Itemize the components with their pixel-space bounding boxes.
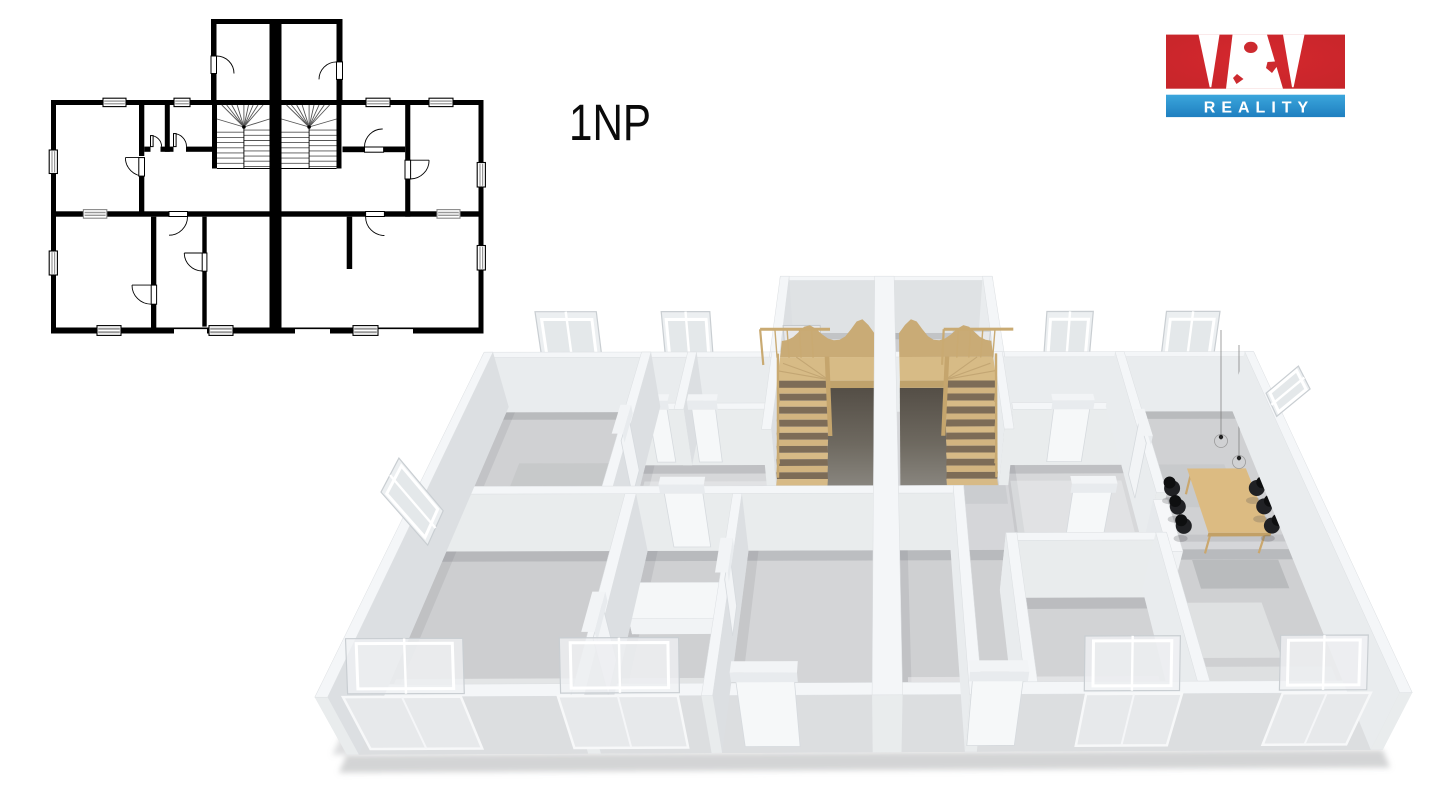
svg-text:REALITY: REALITY xyxy=(1204,99,1314,116)
svg-text:1NP: 1NP xyxy=(569,94,651,151)
